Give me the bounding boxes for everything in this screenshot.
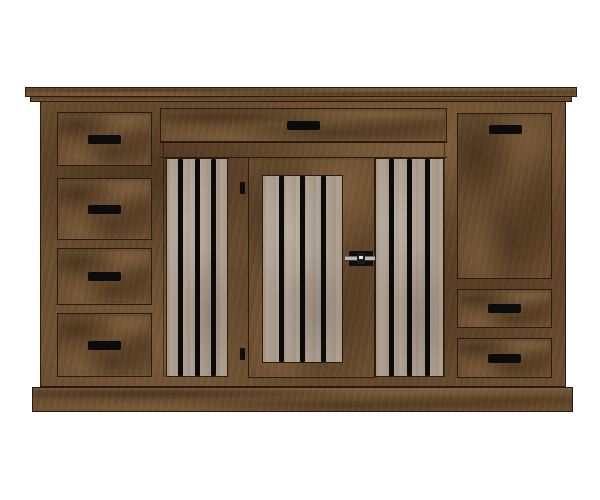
left-drawer-4	[57, 313, 152, 377]
kennel-bar	[425, 159, 430, 376]
kennel-door	[248, 157, 375, 378]
kennel-bar	[279, 176, 284, 362]
slide-bolt-latch	[345, 250, 377, 267]
kennel-slat-panel-left	[166, 158, 228, 377]
drawer-handle	[88, 272, 121, 281]
door-hinge-top	[240, 182, 245, 194]
kennel-slat-panel-right	[375, 158, 444, 377]
kennel-right-seam	[444, 143, 445, 377]
right-drawer-2	[457, 338, 552, 378]
drawer-handle	[488, 354, 521, 363]
kennel-bar	[407, 159, 412, 376]
kennel-bar	[178, 159, 183, 376]
kennel-top-rail	[160, 142, 447, 158]
kennel-bar	[300, 176, 305, 362]
left-drawer-1	[57, 112, 152, 166]
top-center-drawer	[160, 108, 447, 142]
base-plinth	[32, 387, 573, 412]
door-handle	[489, 125, 522, 134]
latch-knob-glint	[359, 256, 363, 259]
left-drawer-2	[57, 178, 152, 240]
kennel-left-seam	[163, 143, 164, 377]
left-drawer-3	[57, 248, 152, 305]
right-drawer-1	[457, 289, 552, 328]
drawer-handle	[287, 121, 320, 130]
kennel-bar	[321, 176, 326, 362]
kennel-bar	[389, 159, 394, 376]
kennel-door-panel	[262, 175, 343, 363]
drawer-handle	[488, 304, 521, 313]
door-hinge-bottom	[240, 348, 245, 360]
drawer-handle	[88, 341, 121, 350]
kennel-bar	[195, 159, 200, 376]
kennel-bar	[211, 159, 216, 376]
drawer-handle	[88, 205, 121, 214]
drawer-handle	[88, 135, 121, 144]
product-render-canvas	[0, 0, 600, 500]
right-cabinet-door	[457, 113, 552, 279]
